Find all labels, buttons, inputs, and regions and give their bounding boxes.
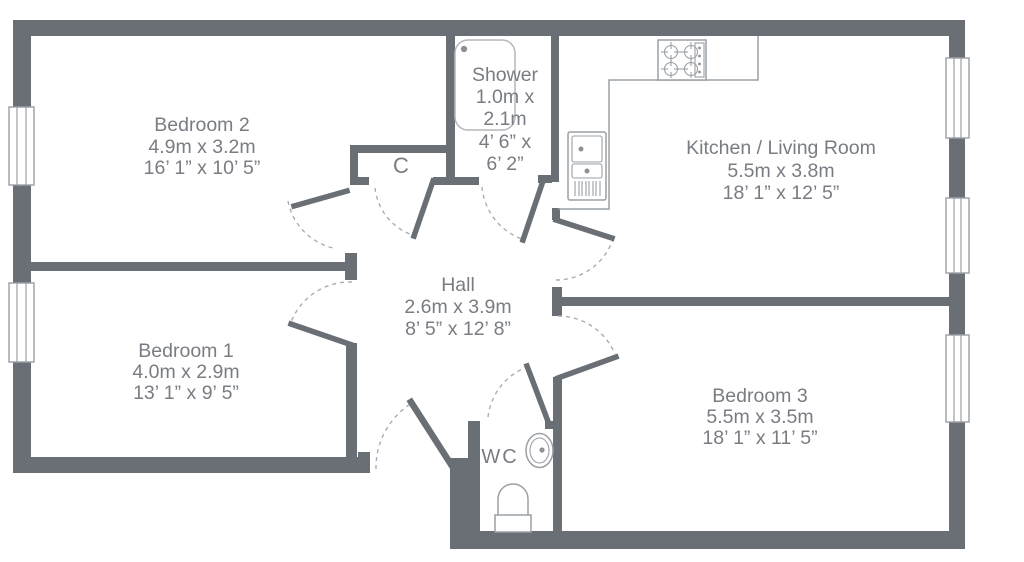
window-bedroom3: [946, 335, 969, 422]
wall-right-c: [949, 273, 965, 335]
wall-right-d: [949, 422, 965, 549]
door-wc: [488, 366, 549, 424]
wall-bottom-left: [13, 457, 368, 473]
bedroom1-metric: 4.0m x 2.9m: [132, 361, 239, 383]
wall-left-c: [13, 362, 31, 473]
wall-bed-divider-cap: [345, 253, 357, 280]
door-kitchen: [556, 220, 613, 280]
closet-label: C: [393, 153, 409, 178]
hall-metric: 2.6m x 3.9m: [404, 296, 511, 318]
toilet: [495, 484, 531, 532]
bedroom2-metric: 4.9m x 3.2m: [148, 136, 255, 158]
window-kitchen-2: [946, 198, 969, 273]
shower-dim-4: 6’ 2”: [486, 153, 523, 175]
wall-kitchen-bed3-cap: [552, 287, 562, 316]
door-closet: [375, 181, 433, 237]
shower-dim-2: 2.1m: [483, 108, 526, 130]
door-shower: [482, 181, 543, 240]
door-bedroom2: [288, 191, 347, 248]
wall-left-b: [13, 185, 31, 283]
floorplan-svg: Bedroom 2 4.9m x 3.2m 16’ 1” x 10’ 5” Sh…: [0, 0, 1024, 562]
door-bedroom1: [290, 282, 352, 345]
hall-imperial: 8’ 5” x 12’ 8”: [405, 318, 511, 340]
bedroom3-imperial: 18’ 1” x 11’ 5”: [702, 427, 817, 449]
wall-bottom-left-cap: [358, 452, 370, 473]
bedroom3-metric: 5.5m x 3.5m: [706, 406, 813, 428]
wall-bed-divider: [31, 262, 352, 271]
bedroom2-name: Bedroom 2: [154, 114, 249, 136]
kitchen-imperial: 18’ 1” x 12’ 5”: [723, 182, 840, 204]
wall-closet-top: [350, 145, 450, 153]
window-bedroom2: [9, 107, 34, 185]
wall-closet-right-stub: [433, 177, 479, 185]
wc-label: WC: [481, 446, 518, 468]
door-entrance: [376, 402, 452, 469]
hall-name: Hall: [441, 274, 475, 296]
wall-bed1-right: [346, 343, 357, 457]
window-bedroom1: [9, 283, 34, 362]
shower-dim-3: 4’ 6” x: [479, 131, 532, 153]
bedroom3-name: Bedroom 3: [712, 385, 807, 407]
kitchen-name: Kitchen / Living Room: [686, 137, 876, 159]
bedroom2-imperial: 16’ 1” x 10’ 5”: [144, 157, 261, 179]
wall-kitchen-left: [551, 36, 559, 182]
wall-bottom-right: [450, 531, 965, 549]
shower-name: Shower: [472, 64, 539, 86]
wall-left-a: [13, 20, 31, 107]
door-bedroom3: [558, 316, 616, 378]
wash-basin: [526, 434, 553, 468]
shower-dim-1: 1.0m x: [476, 86, 535, 108]
wall-wc-left-thick: [450, 458, 468, 549]
wall-shower-left: [446, 36, 455, 185]
kitchen-metric: 5.5m x 3.8m: [727, 160, 834, 182]
bedroom1-imperial: 13’ 1” x 9’ 5”: [133, 382, 239, 404]
sink-unit: [568, 132, 606, 200]
wall-wc-left-thin: [468, 421, 480, 531]
wall-closet-left-stub: [358, 177, 369, 185]
bedroom1-name: Bedroom 1: [138, 340, 233, 362]
wall-wc-right: [553, 377, 562, 531]
floorplan-page: Bedroom 2 4.9m x 3.2m 16’ 1” x 10’ 5” Sh…: [0, 0, 1024, 562]
wall-right-b: [949, 137, 965, 198]
wall-top: [13, 20, 965, 36]
window-kitchen-1: [946, 58, 969, 138]
hob: [658, 40, 706, 80]
wall-kitchen-bed3: [557, 297, 949, 306]
wall-right-a: [949, 20, 965, 59]
wall-closet-left: [350, 145, 358, 185]
